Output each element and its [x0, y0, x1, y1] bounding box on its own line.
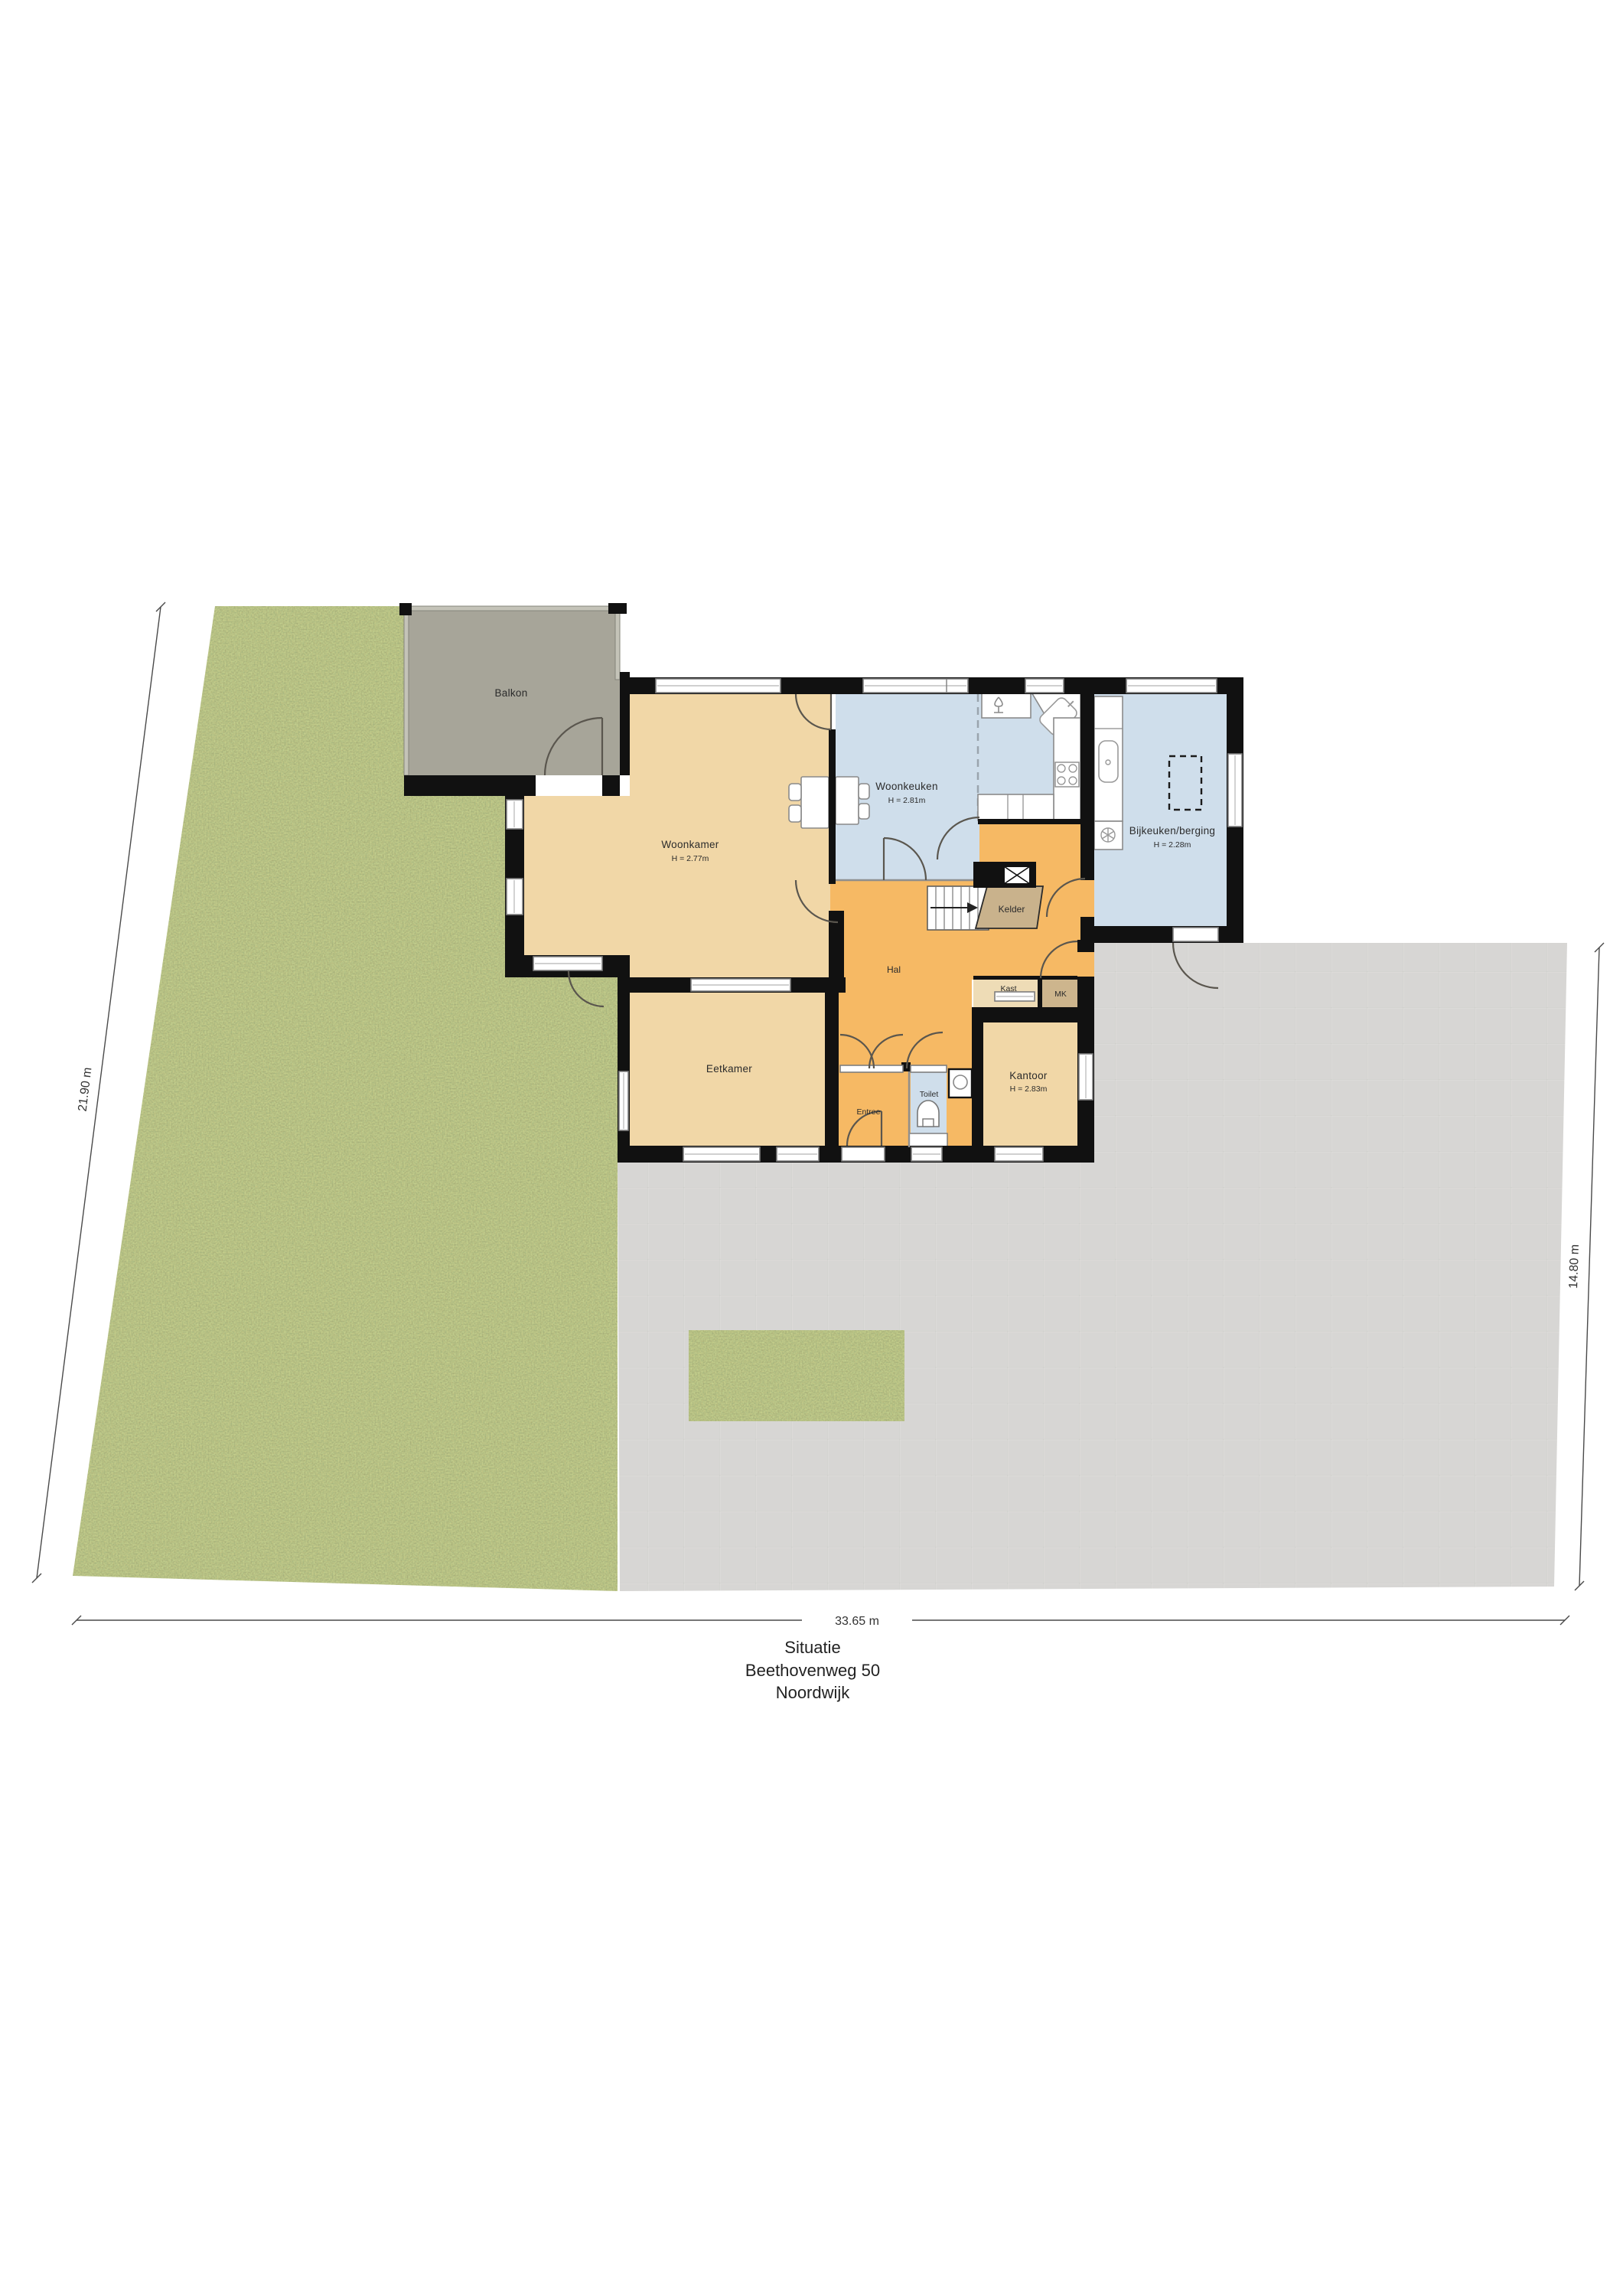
toilet-label: Toilet [920, 1090, 939, 1099]
dimension-right: 14.80 m [1567, 943, 1604, 1590]
window [507, 879, 523, 915]
woonkamer-floor [630, 693, 830, 977]
kantoor-height: H = 2.83m [1010, 1084, 1048, 1094]
kantoor-label: Kantoor [1009, 1070, 1048, 1081]
dimension-bottom-label: 33.65 m [835, 1615, 879, 1628]
counter-peninsula [978, 794, 1054, 820]
window [1025, 679, 1064, 693]
window [619, 1071, 628, 1130]
bijkeuken-south-wall [1094, 926, 1243, 943]
window [656, 679, 781, 693]
dimension-right-label: 14.80 m [1567, 1244, 1582, 1289]
planter-bed [689, 1330, 904, 1421]
window [1126, 679, 1217, 693]
title-city: Noordwijk [776, 1683, 851, 1702]
washbasin [949, 1069, 972, 1097]
window [1079, 1054, 1093, 1100]
balkon-label: Balkon [494, 687, 527, 699]
woonkamer-height: H = 2.77m [672, 854, 709, 863]
window [863, 679, 968, 693]
balkon-wall-bottom [404, 775, 536, 796]
toilet-icon [917, 1101, 939, 1127]
laundry-sink-icon [1099, 741, 1118, 782]
woonkeuken-label: Woonkeuken [875, 781, 938, 792]
interior-opening [691, 979, 790, 991]
woonkamer-woonkeuken-divider [829, 729, 836, 884]
front-door-sill [842, 1147, 885, 1161]
kast-label: Kast [1000, 984, 1016, 993]
entree-door-sill [840, 1065, 903, 1072]
balkon-railing-left [404, 606, 409, 775]
window [683, 1147, 760, 1161]
kantoor-west-wall [972, 1022, 983, 1146]
window [1228, 754, 1242, 827]
kelder-label: Kelder [999, 904, 1025, 915]
dishwasher [982, 691, 1031, 718]
window [995, 1147, 1043, 1161]
title-address: Beethovenweg 50 [745, 1661, 880, 1680]
door-sill [1173, 928, 1218, 941]
kantoor-north-wall [972, 1007, 1094, 1022]
woonkamer-floor-left [524, 796, 639, 972]
entree-label: Entree [857, 1107, 881, 1117]
dimension-left-label: 21.90 m [77, 1067, 95, 1112]
toilet-door-sill [911, 1065, 947, 1072]
mk-label: MK [1054, 990, 1067, 999]
eetkamer-east-wall [825, 993, 839, 1146]
bijkeuken-label: Bijkeuken/berging [1129, 825, 1215, 837]
balkon-room: Balkon [399, 603, 630, 796]
woonkamer-label: Woonkamer [661, 839, 719, 850]
window [911, 1147, 942, 1161]
window [533, 957, 602, 970]
eetkamer-label: Eetkamer [706, 1063, 752, 1075]
title-block: Situatie Beethovenweg 50 Noordwijk [745, 1638, 880, 1702]
window [777, 1147, 819, 1161]
window [507, 800, 523, 829]
dimension-bottom: 33.65 m [72, 1615, 1569, 1628]
title-situatie: Situatie [784, 1638, 840, 1657]
bijkeuken-height: H = 2.28m [1154, 840, 1191, 850]
floorplan-page: Balkon Kelder [0, 0, 1623, 2296]
floorplan-canvas: Balkon Kelder [0, 0, 1623, 2296]
balkon-railing-top [404, 606, 620, 611]
woonkeuken-height: H = 2.81m [888, 796, 926, 805]
hal-label: Hal [887, 964, 901, 975]
balkon-railing-right [615, 606, 620, 680]
